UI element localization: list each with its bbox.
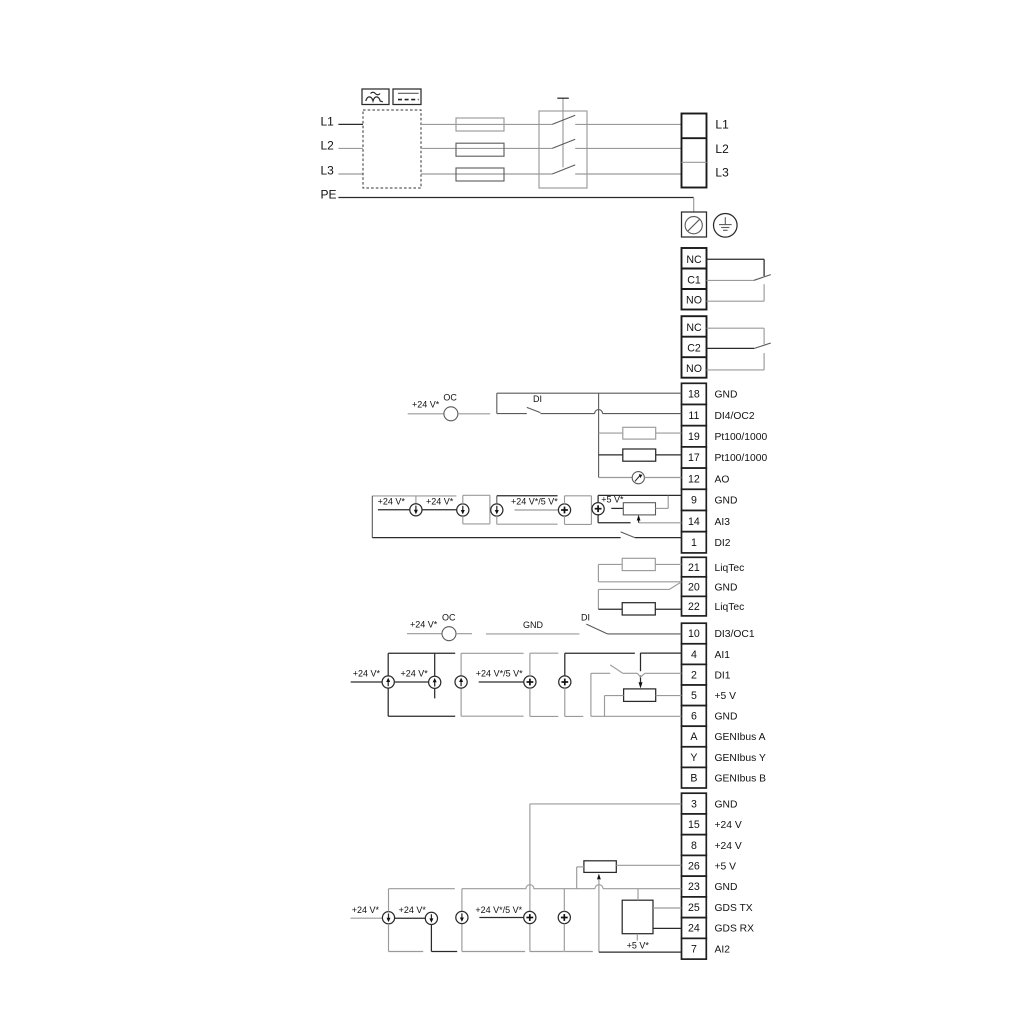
svg-text:25: 25 [688, 902, 700, 914]
svg-text:PE: PE [321, 188, 337, 202]
svg-text:23: 23 [688, 881, 700, 893]
svg-text:DI: DI [581, 612, 590, 622]
svg-text:AI3: AI3 [715, 517, 731, 528]
svg-text:+24 V: +24 V [715, 841, 742, 852]
svg-text:GND: GND [715, 799, 738, 810]
svg-text:+24 V*: +24 V* [410, 620, 438, 630]
svg-text:Pt100/1000: Pt100/1000 [715, 432, 768, 443]
svg-text:24: 24 [688, 923, 700, 935]
svg-text:+24 V*: +24 V* [378, 496, 406, 506]
svg-text:+24 V*: +24 V* [426, 496, 454, 506]
svg-text:+5 V*: +5 V* [601, 495, 624, 505]
svg-text:6: 6 [691, 711, 697, 723]
svg-text:AI2: AI2 [715, 944, 731, 955]
svg-text:LiqTec: LiqTec [715, 563, 745, 574]
svg-text:GND: GND [715, 582, 738, 593]
svg-text:15: 15 [688, 819, 700, 831]
svg-text:+24 V: +24 V [715, 820, 742, 831]
svg-text:20: 20 [688, 581, 700, 593]
svg-text:26: 26 [688, 860, 700, 872]
svg-text:21: 21 [688, 562, 700, 574]
svg-text:+24 V*: +24 V* [399, 905, 427, 915]
svg-text:DI4/OC2: DI4/OC2 [715, 411, 755, 422]
svg-text:+5 V: +5 V [715, 691, 737, 702]
svg-text:L1: L1 [321, 115, 335, 129]
svg-text:GENIbus Y: GENIbus Y [715, 753, 766, 764]
svg-text:+5 V*: +5 V* [627, 941, 650, 951]
svg-text:18: 18 [688, 389, 700, 401]
svg-text:5: 5 [691, 690, 697, 702]
svg-text:+24 V*: +24 V* [401, 668, 429, 678]
svg-text:+24 V*: +24 V* [352, 905, 380, 915]
svg-text:3: 3 [691, 798, 697, 810]
svg-text:GND: GND [715, 390, 738, 401]
svg-text:B: B [690, 772, 697, 784]
svg-text:L3: L3 [321, 164, 335, 178]
svg-text:Pt100/1000: Pt100/1000 [715, 453, 768, 464]
svg-text:GND: GND [523, 620, 544, 630]
svg-text:NO: NO [686, 363, 702, 375]
svg-text:2: 2 [691, 669, 697, 681]
svg-text:GENIbus A: GENIbus A [715, 732, 766, 743]
svg-text:L1: L1 [715, 118, 729, 132]
svg-text:+24 V*/5 V*: +24 V*/5 V* [511, 496, 558, 506]
svg-text:GND: GND [715, 496, 738, 507]
svg-text:10: 10 [688, 628, 700, 640]
svg-text:C1: C1 [687, 275, 701, 287]
svg-text:L3: L3 [715, 165, 729, 179]
svg-text:7: 7 [691, 943, 697, 955]
svg-text:NO: NO [686, 295, 702, 307]
svg-text:DI1: DI1 [715, 670, 731, 681]
svg-text:GDS RX: GDS RX [715, 924, 755, 935]
svg-text:19: 19 [688, 431, 700, 443]
svg-text:GND: GND [715, 712, 738, 723]
svg-text:1: 1 [691, 537, 697, 549]
svg-text:9: 9 [691, 495, 697, 507]
svg-text:NC: NC [686, 322, 702, 334]
svg-text:LiqTec: LiqTec [715, 602, 745, 613]
svg-text:OC: OC [442, 612, 456, 622]
svg-text:+24 V*: +24 V* [353, 668, 381, 678]
svg-text:+24 V*/5 V*: +24 V*/5 V* [476, 668, 523, 678]
svg-text:+24 V*/5 V*: +24 V*/5 V* [475, 905, 522, 915]
svg-text:GND: GND [715, 882, 738, 893]
svg-text:DI: DI [533, 394, 542, 404]
svg-text:A: A [690, 731, 698, 743]
svg-text:12: 12 [688, 473, 700, 485]
svg-text:DI2: DI2 [715, 538, 731, 549]
svg-text:L2: L2 [715, 142, 729, 156]
svg-text:+5 V: +5 V [715, 861, 737, 872]
svg-text:GDS TX: GDS TX [715, 903, 753, 914]
svg-text:+24 V*: +24 V* [412, 400, 440, 410]
svg-text:Y: Y [690, 752, 697, 764]
svg-text:17: 17 [688, 452, 700, 464]
svg-text:L2: L2 [321, 139, 335, 153]
svg-text:14: 14 [688, 516, 700, 528]
svg-text:C2: C2 [687, 343, 701, 355]
svg-text:22: 22 [688, 601, 700, 613]
svg-text:AO: AO [715, 474, 730, 485]
svg-text:DI3/OC1: DI3/OC1 [715, 629, 755, 640]
svg-text:GENIbus B: GENIbus B [715, 773, 767, 784]
svg-text:11: 11 [688, 410, 699, 422]
svg-text:4: 4 [691, 649, 697, 661]
svg-text:8: 8 [691, 840, 697, 852]
svg-text:OC: OC [443, 393, 457, 403]
svg-text:AI1: AI1 [715, 650, 731, 661]
svg-text:NC: NC [686, 254, 702, 266]
